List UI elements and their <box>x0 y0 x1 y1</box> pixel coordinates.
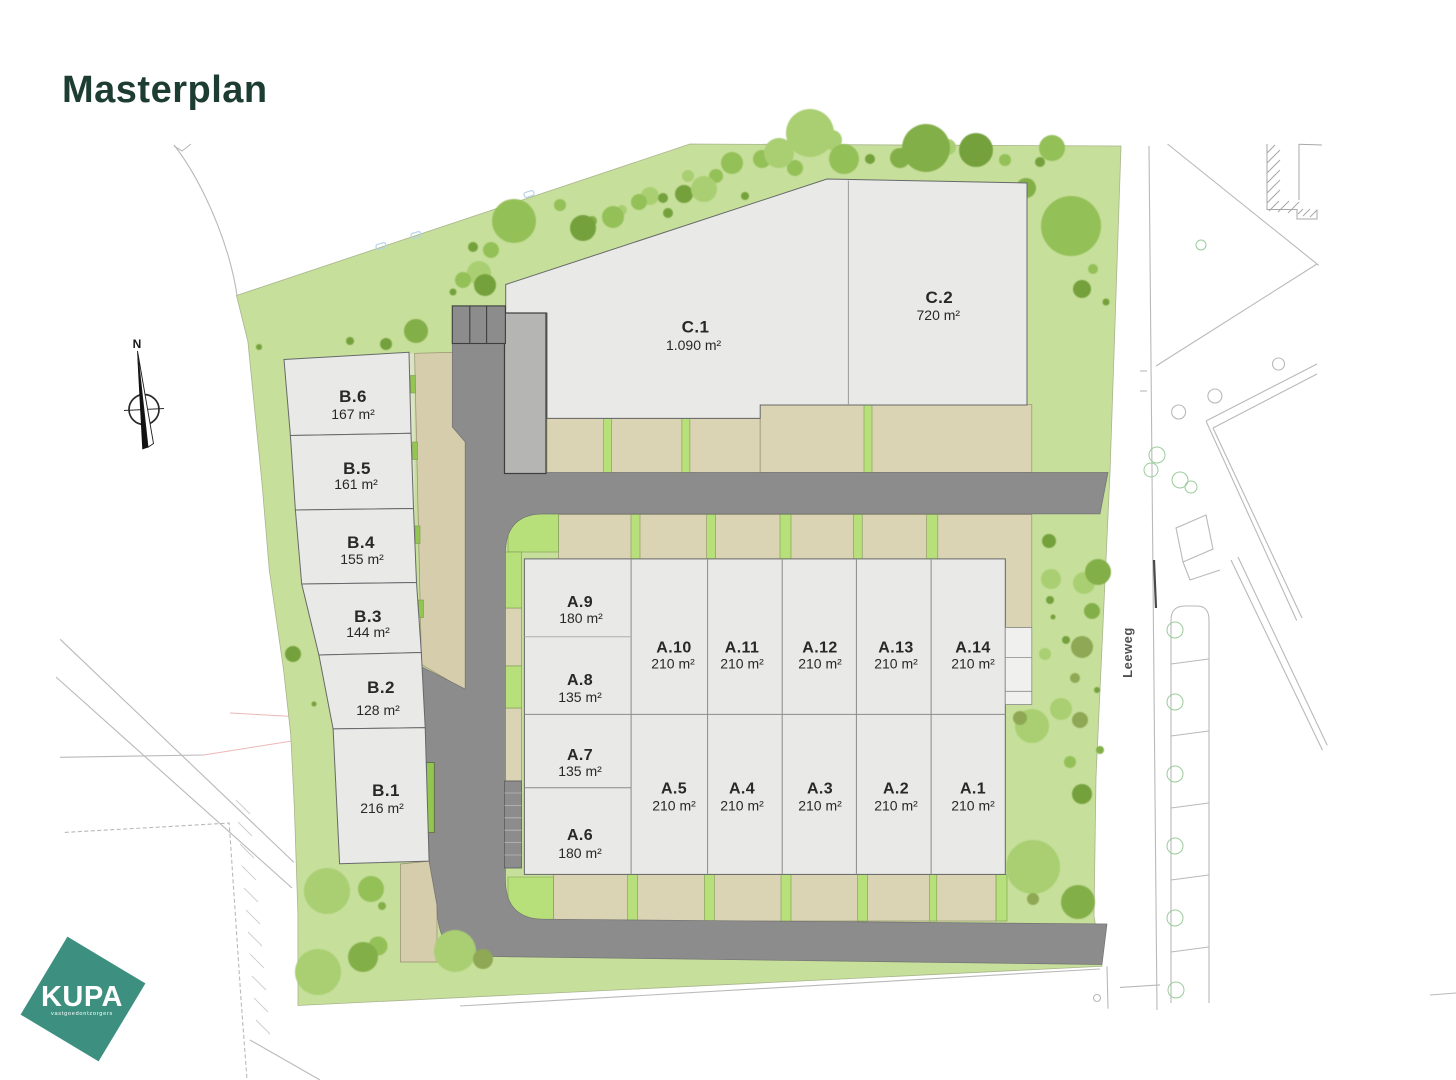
svg-text:210 m²: 210 m² <box>798 656 842 672</box>
svg-text:vastgoedontzorgers: vastgoedontzorgers <box>51 1011 113 1017</box>
svg-text:B.1: B.1 <box>372 781 400 800</box>
svg-text:A.2: A.2 <box>883 781 909 798</box>
svg-text:167 m²: 167 m² <box>331 406 375 422</box>
svg-text:210 m²: 210 m² <box>798 798 842 814</box>
svg-text:B.4: B.4 <box>347 533 375 552</box>
svg-text:135 m²: 135 m² <box>558 689 602 705</box>
svg-text:A.5: A.5 <box>661 781 687 798</box>
svg-text:A.14: A.14 <box>955 640 990 657</box>
svg-text:216 m²: 216 m² <box>360 800 404 816</box>
svg-text:A.6: A.6 <box>567 827 593 844</box>
svg-text:A.1: A.1 <box>960 781 986 798</box>
svg-text:210 m²: 210 m² <box>720 798 764 814</box>
svg-text:B.2: B.2 <box>367 678 395 697</box>
svg-text:210 m²: 210 m² <box>720 656 764 672</box>
svg-text:A.10: A.10 <box>656 640 691 657</box>
svg-text:144 m²: 144 m² <box>346 624 390 640</box>
svg-text:A.8: A.8 <box>567 672 593 689</box>
svg-text:A.12: A.12 <box>802 640 837 657</box>
svg-text:210 m²: 210 m² <box>651 656 695 672</box>
svg-text:135 m²: 135 m² <box>558 763 602 779</box>
svg-text:161 m²: 161 m² <box>334 476 378 492</box>
svg-text:A.3: A.3 <box>807 781 833 798</box>
svg-text:210 m²: 210 m² <box>951 656 995 672</box>
svg-text:C.1: C.1 <box>682 318 710 337</box>
svg-text:A.9: A.9 <box>567 594 593 611</box>
svg-text:210 m²: 210 m² <box>874 798 918 814</box>
svg-text:N: N <box>133 337 142 351</box>
svg-text:720 m²: 720 m² <box>917 307 961 323</box>
svg-text:A.11: A.11 <box>725 640 760 657</box>
svg-text:C.2: C.2 <box>925 288 953 307</box>
svg-text:1.090 m²: 1.090 m² <box>666 337 722 353</box>
svg-text:210 m²: 210 m² <box>951 798 995 814</box>
svg-text:Masterplan: Masterplan <box>62 69 268 111</box>
svg-text:B.6: B.6 <box>339 387 367 406</box>
svg-text:180 m²: 180 m² <box>559 610 603 626</box>
svg-text:210 m²: 210 m² <box>652 798 696 814</box>
svg-text:210 m²: 210 m² <box>874 656 918 672</box>
svg-text:Leeweg: Leeweg <box>1120 627 1135 678</box>
svg-text:A.4: A.4 <box>729 781 755 798</box>
svg-text:155 m²: 155 m² <box>340 551 384 567</box>
svg-text:180 m²: 180 m² <box>558 845 602 861</box>
svg-text:128 m²: 128 m² <box>356 702 400 718</box>
svg-text:A.13: A.13 <box>878 640 913 657</box>
svg-text:A.7: A.7 <box>567 747 593 764</box>
svg-text:KUPA: KUPA <box>41 981 123 1013</box>
